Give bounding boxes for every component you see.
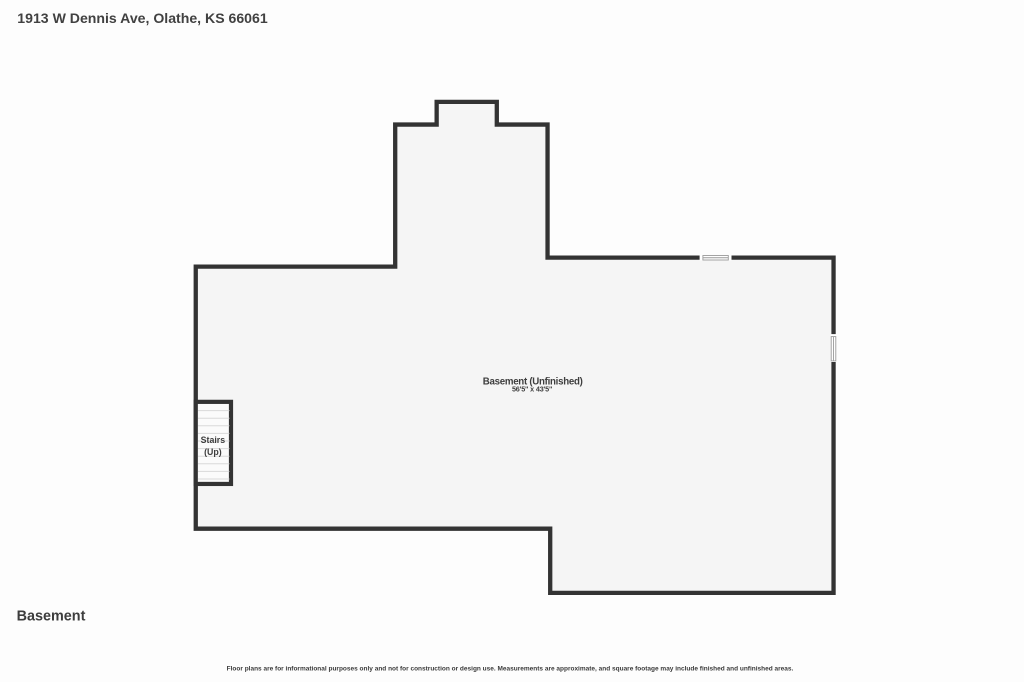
svg-text:1913 W Dennis Ave, Olathe, KS: 1913 W Dennis Ave, Olathe, KS 66061	[17, 10, 268, 26]
svg-text:Stairs: Stairs	[201, 435, 226, 445]
svg-text:56'5" x 43'5": 56'5" x 43'5"	[512, 385, 552, 394]
svg-text:(Up): (Up)	[204, 447, 222, 457]
svg-text:Basement: Basement	[17, 608, 86, 624]
svg-text:Floor plans are for informatio: Floor plans are for informational purpos…	[227, 665, 794, 672]
